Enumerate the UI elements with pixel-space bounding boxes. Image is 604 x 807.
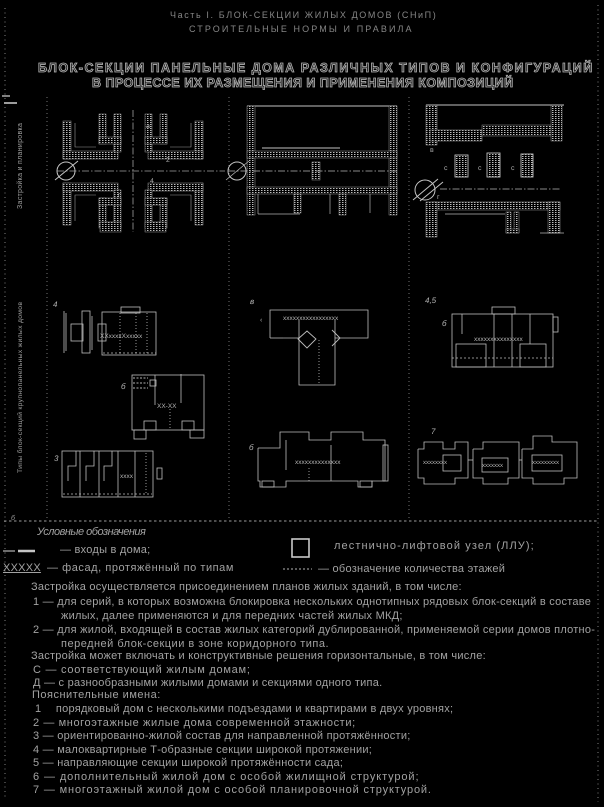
svg-text:в: в [250, 297, 254, 306]
svg-text:4: 4 [150, 178, 154, 185]
svg-text:3: 3 [54, 454, 59, 463]
svg-text:ххххххххххххххххх: ххххххххххххххххх [283, 315, 339, 322]
svg-text:ххххххх: ххххххх [482, 463, 503, 469]
svg-text:б: б [121, 382, 126, 391]
svg-text:‹: ‹ [260, 317, 263, 324]
svg-text:4: 4 [53, 300, 58, 309]
svg-text:с: с [511, 165, 515, 172]
svg-text:хххххххх: хххххххх [423, 460, 447, 466]
svg-text:ХХ-ХХ: ХХ-ХХ [157, 403, 177, 410]
svg-text:хххх: хххх [120, 473, 134, 480]
svg-text:4,5: 4,5 [425, 296, 437, 305]
svg-text:2: 2 [166, 157, 170, 164]
svg-text:7: 7 [431, 427, 436, 436]
svg-text:с: с [444, 165, 448, 172]
svg-text:г: г [118, 192, 121, 199]
svg-text:г: г [437, 194, 440, 201]
svg-text:ХХххххХххххх: ХХххххХххххх [100, 333, 143, 340]
svg-text:с: с [478, 165, 482, 172]
svg-text:в: в [430, 147, 434, 154]
svg-text:б: б [249, 443, 254, 452]
svg-text:ххххххххххххххх: ххххххххххххххх [474, 336, 524, 343]
svg-text:ххххххххх: ххххххххх [532, 460, 559, 466]
svg-text:а: а [146, 123, 150, 130]
svg-text:хххххххххххххх: хххххххххххххх [295, 459, 341, 466]
svg-text:б: б [442, 319, 447, 328]
